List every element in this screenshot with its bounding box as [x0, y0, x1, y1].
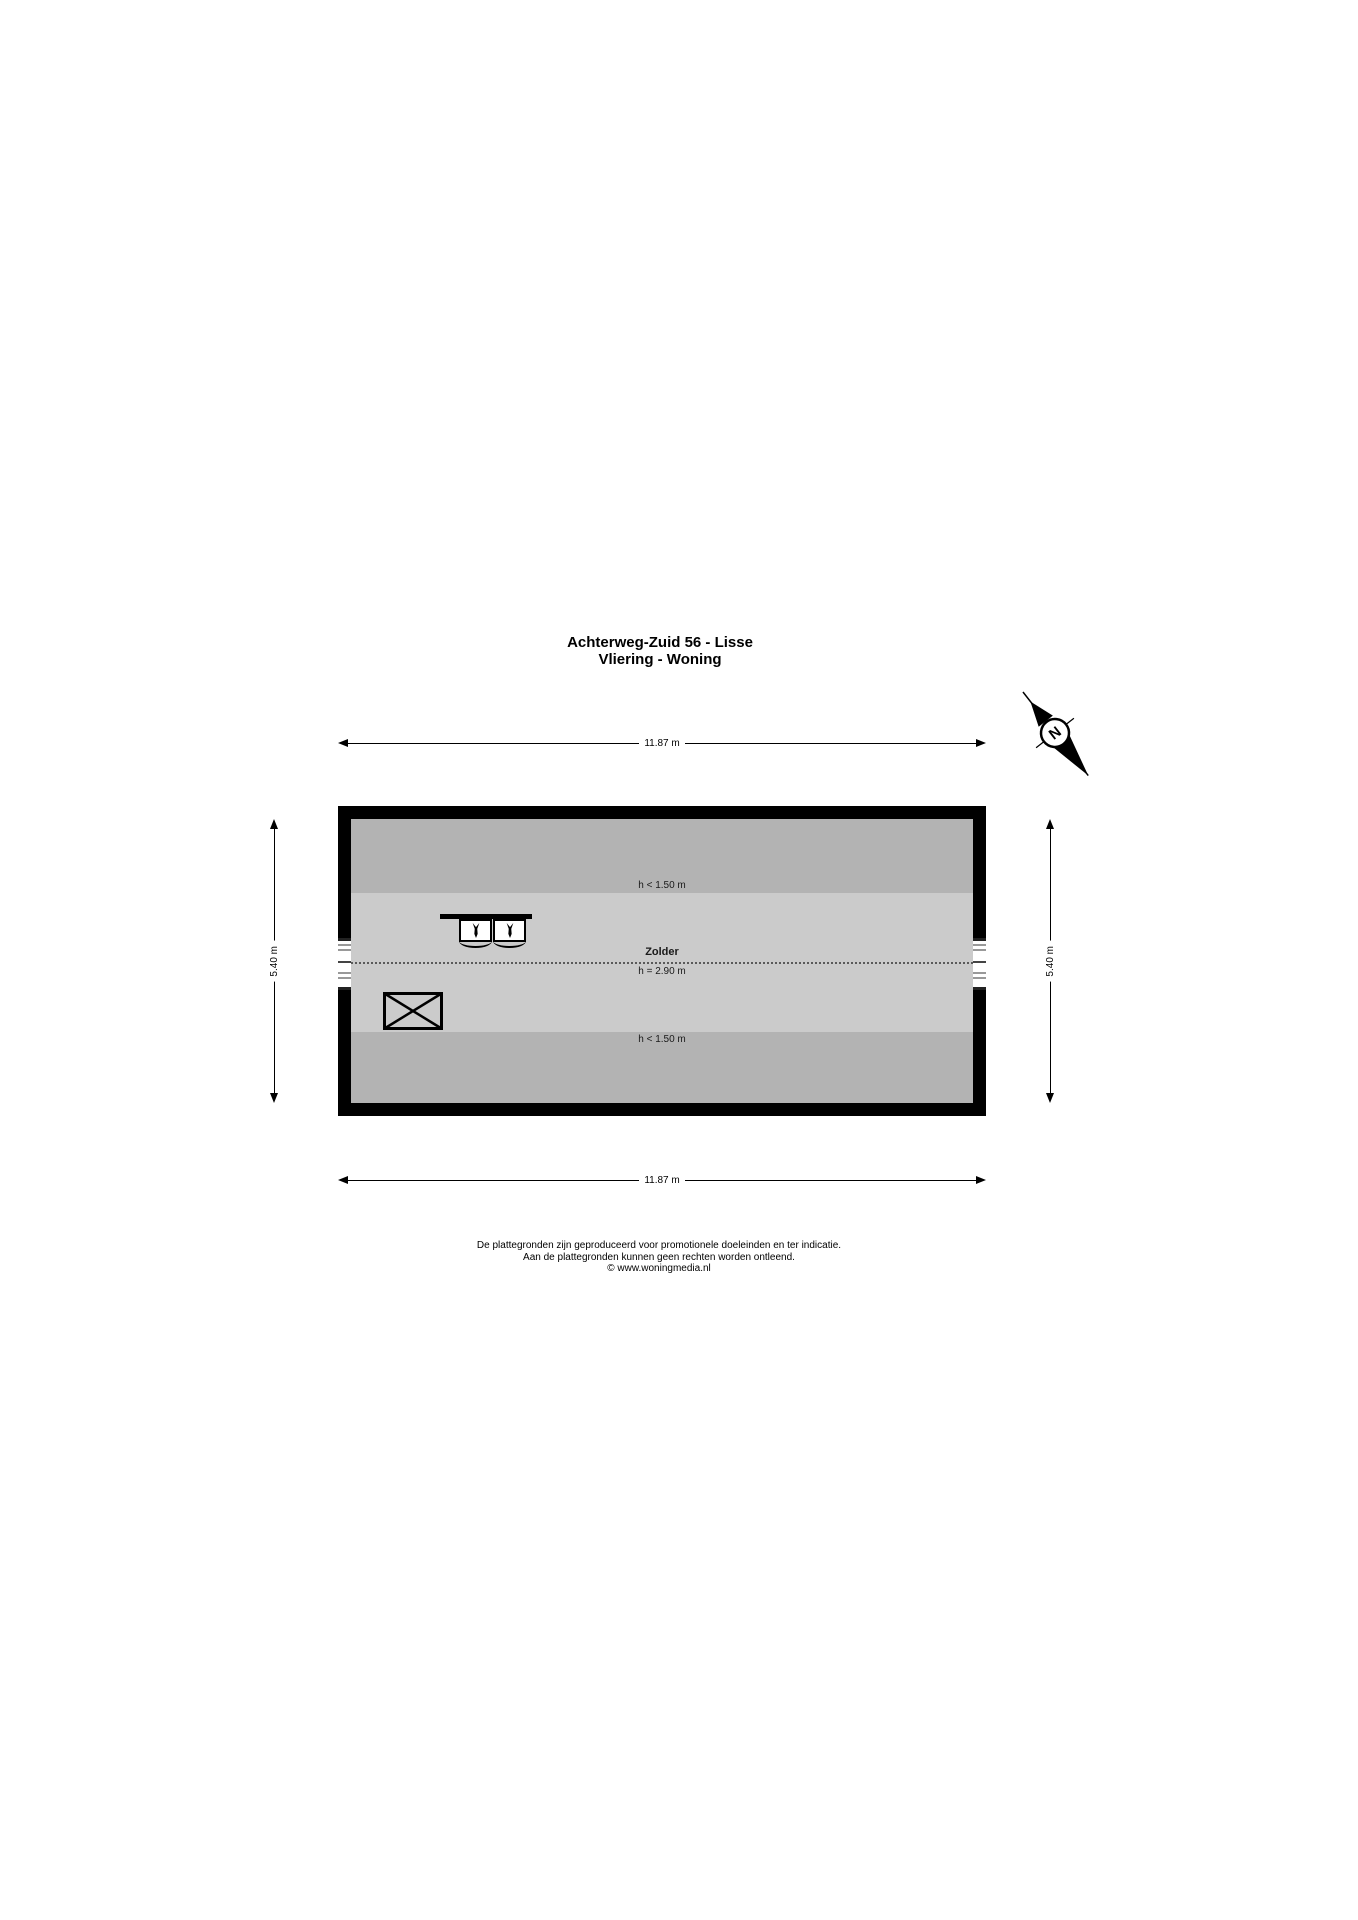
dimension-line [685, 1180, 976, 1181]
dimension-line [1050, 981, 1051, 1093]
window-frame-line [973, 977, 986, 979]
dimension-line [348, 1180, 639, 1181]
side-window-right [973, 938, 986, 990]
window-opening-arrow-icon [505, 922, 515, 939]
disclaimer: De plattegronden zijn geproduceerd voor … [329, 1240, 989, 1275]
arrow-left-icon [338, 1176, 348, 1184]
dimension-line [685, 743, 976, 744]
dimension-bottom: 11.87 m [338, 1173, 986, 1187]
room-label: Zolder [351, 946, 973, 958]
north-arrow-icon: N [1008, 686, 1118, 801]
window-frame-line [973, 944, 986, 946]
window-frame-line [973, 961, 986, 963]
low-height-label-top: h < 1.50 m [351, 880, 973, 891]
window-frame-line [338, 944, 351, 946]
side-window-left [338, 938, 351, 990]
arrow-right-icon [976, 739, 986, 747]
arrow-down-icon [1046, 1093, 1054, 1103]
window-frame-line [338, 987, 351, 990]
window-opening-arrow-icon [471, 922, 481, 939]
window-frame-line [973, 938, 986, 941]
low-height-label-bottom: h < 1.50 m [351, 1034, 973, 1045]
window-frame-line [973, 949, 986, 951]
window-frame-line [338, 961, 351, 963]
dimension-left-label: 5.40 m [269, 941, 280, 982]
window-frame-line [973, 972, 986, 974]
ridge-height-label: h = 2.90 m [351, 966, 973, 977]
dimension-top: 11.87 m [338, 736, 986, 750]
floorplan-page: Achterweg-Zuid 56 - Lisse Vliering - Won… [0, 0, 1358, 1920]
window-frame-line [973, 987, 986, 990]
dimension-top-label: 11.87 m [639, 738, 684, 749]
arrow-up-icon [270, 819, 278, 829]
dimension-right-label: 5.40 m [1045, 941, 1056, 982]
window-frame-line [338, 949, 351, 951]
copyright-line: © www.woningmedia.nl [329, 1263, 989, 1275]
page-title: Achterweg-Zuid 56 - Lisse Vliering - Won… [360, 634, 960, 668]
window-frame-line [338, 977, 351, 979]
arrow-up-icon [1046, 819, 1054, 829]
window-frame-line [338, 972, 351, 974]
dimension-line [348, 743, 639, 744]
address-title: Achterweg-Zuid 56 - Lisse [360, 634, 960, 651]
disclaimer-line-2: Aan de plattegronden kunnen geen rechten… [329, 1252, 989, 1264]
arrow-left-icon [338, 739, 348, 747]
roof-window [493, 919, 526, 942]
floor-subtitle: Vliering - Woning [360, 651, 960, 668]
arrow-down-icon [270, 1093, 278, 1103]
dimension-right: 5.40 m [1043, 819, 1057, 1103]
floorplan-outline: h < 1.50 m Zolder h = 2.90 m h < 1.50 m [338, 806, 986, 1116]
dimension-left: 5.40 m [267, 819, 281, 1103]
window-frame-line [338, 938, 351, 941]
dimension-line [274, 829, 275, 941]
stairwell-opening [383, 992, 443, 1030]
dimension-bottom-label: 11.87 m [639, 1175, 684, 1186]
arrow-right-icon [976, 1176, 986, 1184]
dimension-line [274, 981, 275, 1093]
roof-window [459, 919, 492, 942]
ridge-dotted-line [351, 962, 973, 964]
attic-room: h < 1.50 m Zolder h = 2.90 m h < 1.50 m [351, 819, 973, 1103]
disclaimer-line-1: De plattegronden zijn geproduceerd voor … [329, 1240, 989, 1252]
dimension-line [1050, 829, 1051, 941]
